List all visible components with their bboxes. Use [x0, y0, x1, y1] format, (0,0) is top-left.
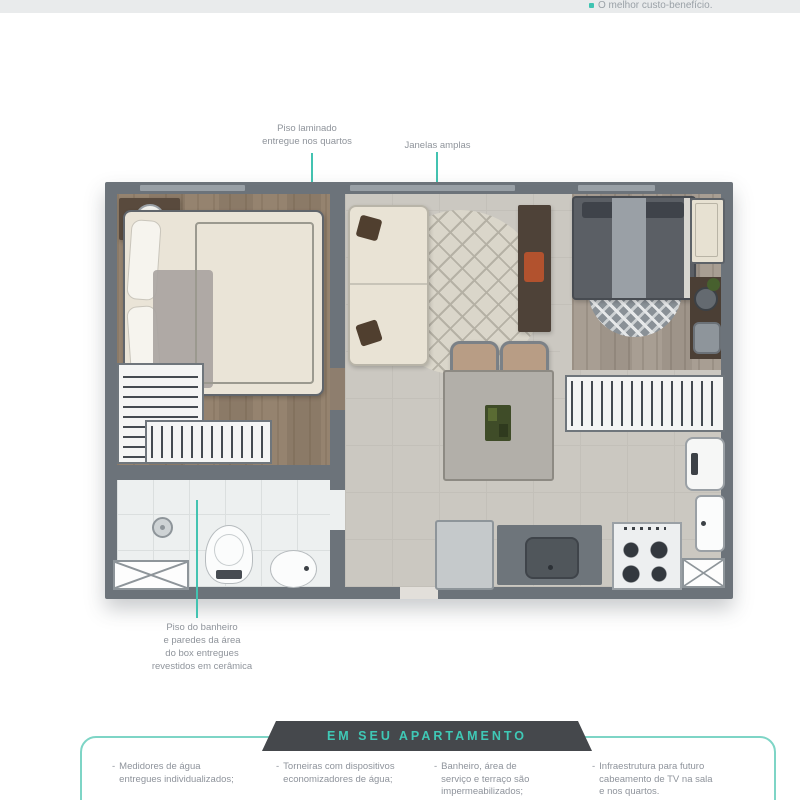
crib: [690, 198, 725, 264]
feature-item-banheiro: - Banheiro, área de serviço e terraço sã…: [434, 761, 574, 799]
callout-banheiro: Piso do banheiro e paredes da área do bo…: [117, 621, 287, 673]
faucet-icon: [548, 565, 553, 570]
callout-banheiro-line4: revestidos em cerâmica: [117, 660, 287, 673]
throw-pillow: [355, 319, 383, 347]
flyer-page: O melhor custo-benefício. Piso laminado …: [0, 0, 800, 800]
kitchen-sink: [525, 537, 579, 579]
feature-item-torneiras: - Torneiras com dispositivos economizado…: [276, 761, 441, 786]
kitchen-counter: [497, 525, 602, 585]
sofa-cushion-divider: [350, 283, 427, 285]
faucet-icon: [304, 566, 309, 571]
stove-knobs: [624, 527, 666, 530]
wardrobe-bedroom-1-horizontal: [145, 420, 272, 464]
bullet-icon: [589, 3, 594, 8]
stove: [612, 522, 682, 590]
washing-machine: [685, 437, 725, 491]
toilet-base: [216, 570, 242, 579]
feature-line: Torneiras com dispositivos: [283, 761, 394, 774]
laundry-tub: [695, 495, 725, 552]
wardrobe-bedroom-2: [565, 375, 725, 432]
toilet: [205, 525, 253, 584]
table-centerpiece: [485, 405, 511, 441]
dash-bullet-icon: -: [276, 761, 279, 786]
bathroom-sink: [270, 550, 317, 588]
feature-line: Infraestrutura para futuro: [599, 761, 712, 774]
window-bedroom-2: [578, 185, 655, 191]
clothes-rack-strokes: [151, 426, 266, 458]
tv-rack: [518, 205, 551, 332]
top-tagline: O melhor custo-benefício.: [598, 0, 713, 12]
section-banner: EM SEU APARTAMENTO: [262, 721, 592, 751]
plant-icon: [707, 278, 720, 291]
shaft-box: [113, 560, 189, 590]
callout-piso-laminado-line2: entregue nos quartos: [222, 135, 392, 148]
sofa: [348, 205, 429, 366]
clothes-rack-strokes: [571, 381, 719, 426]
dining-table: [443, 370, 554, 481]
feature-line: Banheiro, área de: [441, 761, 529, 774]
feature-line: Medidores de água: [119, 761, 234, 774]
bathroom-door-opening: [330, 490, 345, 530]
bedroom-2-door-opening: [560, 340, 572, 368]
feature-line: serviço e terraço são: [441, 774, 529, 787]
callout-janelas: Janelas amplas: [380, 139, 495, 152]
window-bedroom-1: [140, 185, 245, 191]
feature-line: impermeabilizados;: [441, 786, 529, 799]
shaft-box: [682, 558, 725, 588]
entry-door-opening: [400, 587, 438, 599]
feature-text: Banheiro, área de serviço e terraço são …: [441, 761, 529, 799]
toilet-bowl: [214, 534, 244, 566]
faucet-icon: [701, 521, 706, 526]
bed-runner: [612, 198, 646, 298]
desk-unit: [690, 277, 721, 359]
feature-line: economizadores de água;: [283, 774, 394, 787]
washer-detail: [691, 453, 698, 475]
callout-piso-laminado: Piso laminado entregue nos quartos: [222, 122, 392, 148]
feature-text: Infraestrutura para futuro cabeamento de…: [599, 761, 712, 799]
decor-object: [524, 252, 544, 282]
throw-pillow: [356, 215, 383, 242]
feature-text: Medidores de água entregues individualiz…: [119, 761, 234, 786]
dash-bullet-icon: -: [112, 761, 115, 786]
feature-line: entregues individualizados;: [119, 774, 234, 787]
crib-inner: [695, 203, 718, 257]
callout-banheiro-line2: e paredes da área: [117, 634, 287, 647]
x-mark-icon: [684, 560, 723, 586]
feature-line: cabeamento de TV na sala: [599, 774, 712, 787]
feature-line: e nos quartos.: [599, 786, 712, 799]
feature-text: Torneiras com dispositivos economizadore…: [283, 761, 394, 786]
shower-drain-icon: [152, 517, 173, 538]
section-title: EM SEU APARTAMENTO: [262, 721, 592, 751]
feature-item-medidores: - Medidores de água entregues individual…: [112, 761, 267, 786]
dash-bullet-icon: -: [434, 761, 437, 799]
desk-chair: [693, 322, 721, 354]
single-bed: [572, 196, 696, 300]
callout-piso-laminado-line1: Piso laminado: [222, 122, 392, 135]
centerpiece-detail: [499, 424, 508, 437]
x-mark-icon: [115, 562, 187, 588]
refrigerator: [435, 520, 494, 590]
callout-janelas-line1: Janelas amplas: [380, 139, 495, 152]
bedroom-1-door-opening: [330, 368, 345, 410]
leader-line-banheiro: [196, 500, 198, 618]
window-living: [350, 185, 515, 191]
callout-banheiro-line1: Piso do banheiro: [117, 621, 287, 634]
duvet-stitching: [195, 222, 314, 384]
feature-item-infraestrutura: - Infraestrutura para futuro cabeamento …: [592, 761, 762, 799]
dash-bullet-icon: -: [592, 761, 595, 799]
floor-plan: [105, 182, 733, 599]
drain-dot: [160, 525, 165, 530]
centerpiece-detail: [488, 408, 497, 421]
callout-banheiro-line3: do box entregues: [117, 647, 287, 660]
